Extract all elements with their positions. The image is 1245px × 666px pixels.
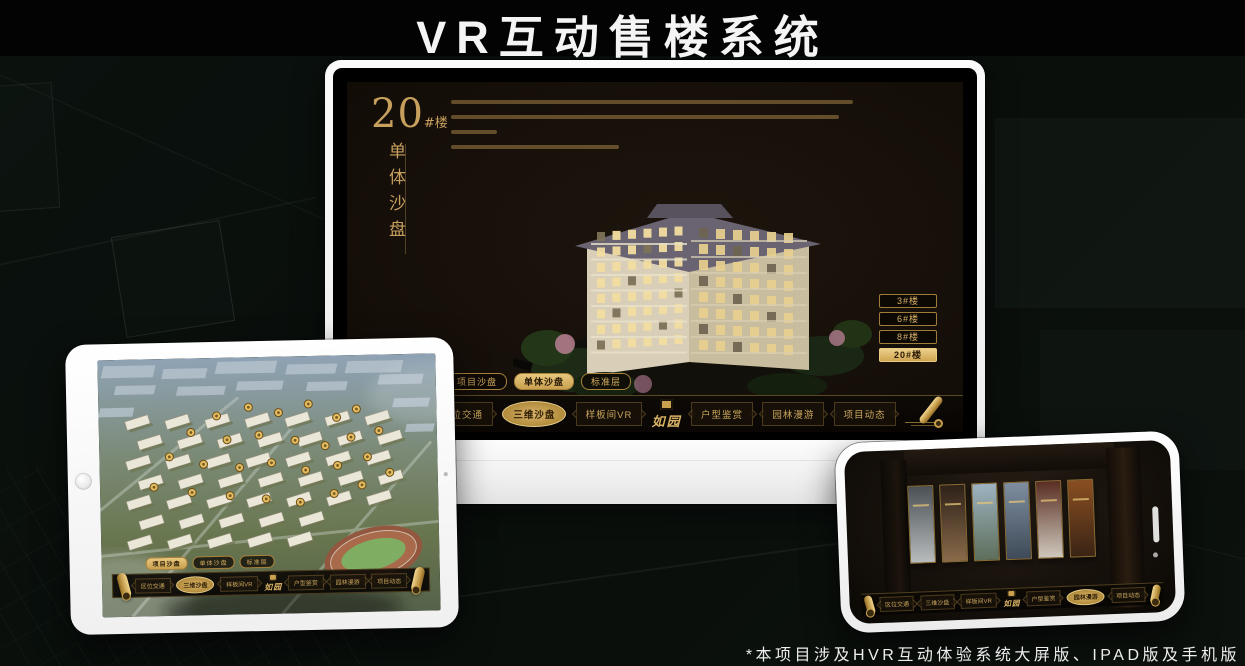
camera-dot-icon xyxy=(444,472,448,476)
panorama-card[interactable] xyxy=(1003,481,1032,560)
tablet-device: 项目沙盘 单体沙盘 标准层 区位交通 三维沙盘 样板间VR 如园 户型鉴赏 园林… xyxy=(65,337,459,635)
building-button-20[interactable]: 20#楼 xyxy=(879,348,937,362)
bg-photo-block xyxy=(995,118,1245,308)
brand-logo: 如园 xyxy=(264,573,282,592)
building-selector: 3#楼 6#楼 8#楼 20#楼 xyxy=(879,294,937,362)
phone-device: 区位交通 三维沙盘 样板间VR 如园 户型鉴赏 园林漫游 项目动态 xyxy=(834,430,1185,633)
phone-screen: 区位交通 三维沙盘 样板间VR 如园 户型鉴赏 园林漫游 项目动态 xyxy=(844,440,1176,624)
scroll-end-icon xyxy=(116,572,132,600)
nav-item-project-news[interactable]: 项目动态 xyxy=(371,572,407,588)
building-subtitle: 单体沙盘 xyxy=(383,142,408,246)
camera-dot-icon xyxy=(1153,552,1158,557)
interior-beam xyxy=(904,442,1115,476)
nav-item-3d-sandtable[interactable]: 三维沙盘 xyxy=(920,594,955,610)
building-number: 20 xyxy=(371,91,424,137)
brand-logo-text: 如园 xyxy=(264,581,282,592)
tab-standard-floor[interactable]: 标准层 xyxy=(581,373,631,390)
panorama-card[interactable] xyxy=(1035,480,1064,559)
tab-project-sandtable[interactable]: 项目沙盘 xyxy=(447,373,507,390)
tab-single-sandtable[interactable]: 单体沙盘 xyxy=(192,556,234,570)
tab-standard-floor[interactable]: 标准层 xyxy=(239,555,274,569)
scroll-end-icon xyxy=(863,594,876,615)
panorama-card[interactable] xyxy=(1067,479,1096,558)
panorama-card[interactable] xyxy=(939,484,968,563)
nav-item-project-news[interactable]: 项目动态 xyxy=(834,402,896,426)
nav-item-unit-gallery[interactable]: 户型鉴赏 xyxy=(691,402,753,426)
nav-item-showroom-vr[interactable]: 样板间VR xyxy=(220,576,259,592)
panorama-card[interactable] xyxy=(971,482,1000,561)
nav-item-showroom-vr[interactable]: 样板间VR xyxy=(960,593,997,609)
interior-pillar xyxy=(880,460,912,611)
brand-seal-icon xyxy=(660,399,673,410)
scroll-end-icon xyxy=(410,566,426,594)
brand-logo-text: 如园 xyxy=(652,411,682,430)
building-button-8[interactable]: 8#楼 xyxy=(879,330,937,344)
tablet-floor-tab-bar: 项目沙盘 单体沙盘 标准层 xyxy=(145,555,274,571)
scroll-icon[interactable] xyxy=(905,400,947,428)
nav-item-location-traffic[interactable]: 区位交通 xyxy=(880,596,915,612)
nav-item-garden-tour[interactable]: 园林漫游 xyxy=(762,402,824,426)
nav-item-garden-tour[interactable]: 园林漫游 xyxy=(1067,588,1106,605)
floor-tab-bar: 项目沙盘 单体沙盘 标准层 xyxy=(447,373,631,390)
tab-single-sandtable[interactable]: 单体沙盘 xyxy=(514,373,574,390)
panorama-card-gallery xyxy=(907,479,1096,564)
nav-item-location-traffic[interactable]: 区位交通 xyxy=(135,577,171,593)
building-number-suffix: #楼 xyxy=(424,116,448,131)
brand-seal-icon xyxy=(1007,590,1015,597)
brand-logo: 如园 xyxy=(652,399,682,430)
nav-item-garden-tour[interactable]: 园林漫游 xyxy=(329,573,365,589)
building-heading: 20#楼 xyxy=(371,94,448,134)
scroll-end-icon xyxy=(1149,583,1161,604)
bg-photo-frame xyxy=(0,82,60,212)
building-button-3[interactable]: 3#楼 xyxy=(879,294,937,308)
nav-item-3d-sandtable[interactable]: 三维沙盘 xyxy=(176,576,214,594)
brand-logo-text: 如园 xyxy=(1003,598,1020,610)
home-button xyxy=(75,473,92,490)
nav-item-unit-gallery[interactable]: 户型鉴赏 xyxy=(288,574,324,590)
nav-item-3d-sandtable[interactable]: 三维沙盘 xyxy=(502,401,566,427)
panorama-card[interactable] xyxy=(907,485,936,564)
tablet-screen: 项目沙盘 单体沙盘 标准层 区位交通 三维沙盘 样板间VR 如园 户型鉴赏 园林… xyxy=(97,353,440,617)
footnote-text: *本项目涉及HVR互动体验系统大屏版、IPAD版及手机版 xyxy=(746,641,1240,665)
tab-project-sandtable[interactable]: 项目沙盘 xyxy=(145,557,187,571)
nav-item-unit-gallery[interactable]: 户型鉴赏 xyxy=(1026,590,1061,606)
scroll-indicator xyxy=(1152,506,1159,542)
building-button-6[interactable]: 6#楼 xyxy=(879,312,937,326)
brand-logo: 如园 xyxy=(1003,590,1021,610)
nav-item-showroom-vr[interactable]: 样板间VR xyxy=(576,402,643,426)
brand-seal-icon xyxy=(269,573,277,580)
nav-item-project-news[interactable]: 项目动态 xyxy=(1111,587,1146,603)
page-title: VR互动售楼系统 xyxy=(0,1,1245,66)
